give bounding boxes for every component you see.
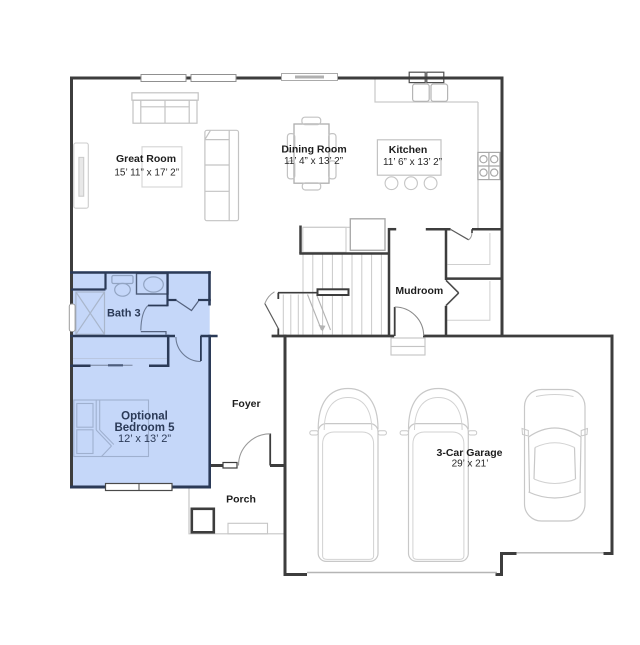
svg-text:Foyer: Foyer — [232, 398, 261, 410]
svg-text:Kitchen: Kitchen — [389, 144, 428, 156]
svg-text:Bath 3: Bath 3 — [107, 308, 141, 320]
svg-text:11’ 6” x 13’ 2”: 11’ 6” x 13’ 2” — [383, 157, 442, 168]
svg-text:Dining Room: Dining Room — [281, 144, 346, 156]
svg-text:Optional: Optional — [121, 410, 168, 422]
svg-text:Mudroom: Mudroom — [395, 285, 443, 297]
svg-text:11’ 4” x 13’ 2”: 11’ 4” x 13’ 2” — [284, 156, 343, 167]
svg-text:12’ x 13’ 2”: 12’ x 13’ 2” — [118, 433, 171, 445]
svg-text:15’ 11” x 17’ 2”: 15’ 11” x 17’ 2” — [114, 167, 179, 178]
svg-text:29’ x 21’: 29’ x 21’ — [452, 458, 489, 469]
svg-text:3-Car Garage: 3-Car Garage — [437, 447, 503, 459]
svg-text:Great Room: Great Room — [116, 153, 176, 165]
svg-text:Porch: Porch — [226, 494, 256, 506]
